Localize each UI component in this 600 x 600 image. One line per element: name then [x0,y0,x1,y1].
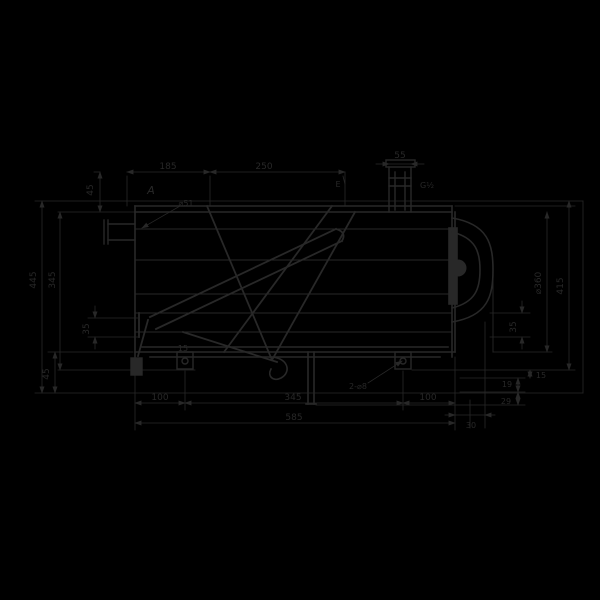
background [0,0,600,600]
dim-445: 445 [29,271,39,288]
dim-19: 19 [502,380,512,389]
dim-bottom-left-45: 45 [42,368,52,379]
dim-250: 250 [255,162,272,172]
label-point-e: E [335,180,340,189]
label-dia-51: ⌀51 [179,199,194,208]
drawing-canvas: 45 185 250 55 A ⌀51 G½ E 445 345 35 45 1… [0,0,600,600]
dim-345-bottom: 345 [284,393,301,403]
dim-100-right: 100 [419,393,436,403]
dim-bottom-right-30: 30 [466,421,476,430]
dim-415: 415 [556,277,566,294]
label-thread-g12: G½ [420,181,434,190]
dim-585: 585 [285,413,302,423]
dim-dia-360: ⌀360 [534,271,544,294]
view-label-a: A [146,184,155,197]
dim-right-35: 35 [509,321,519,332]
dim-left-35: 35 [82,323,92,334]
dim-55: 55 [394,151,405,161]
dim-right-15: 15 [536,371,546,380]
note-2-holes-dia8: 2-⌀8 [349,382,367,391]
dim-top-left-45: 45 [86,184,96,195]
dim-left-345: 345 [48,271,58,288]
dim-29: 29 [501,397,511,406]
technical-drawing: 45 185 250 55 A ⌀51 G½ E 445 345 35 45 1… [0,0,600,600]
dim-bracket-15: 15 [178,344,188,353]
dim-185: 185 [159,162,176,172]
dim-100-left: 100 [151,393,168,403]
